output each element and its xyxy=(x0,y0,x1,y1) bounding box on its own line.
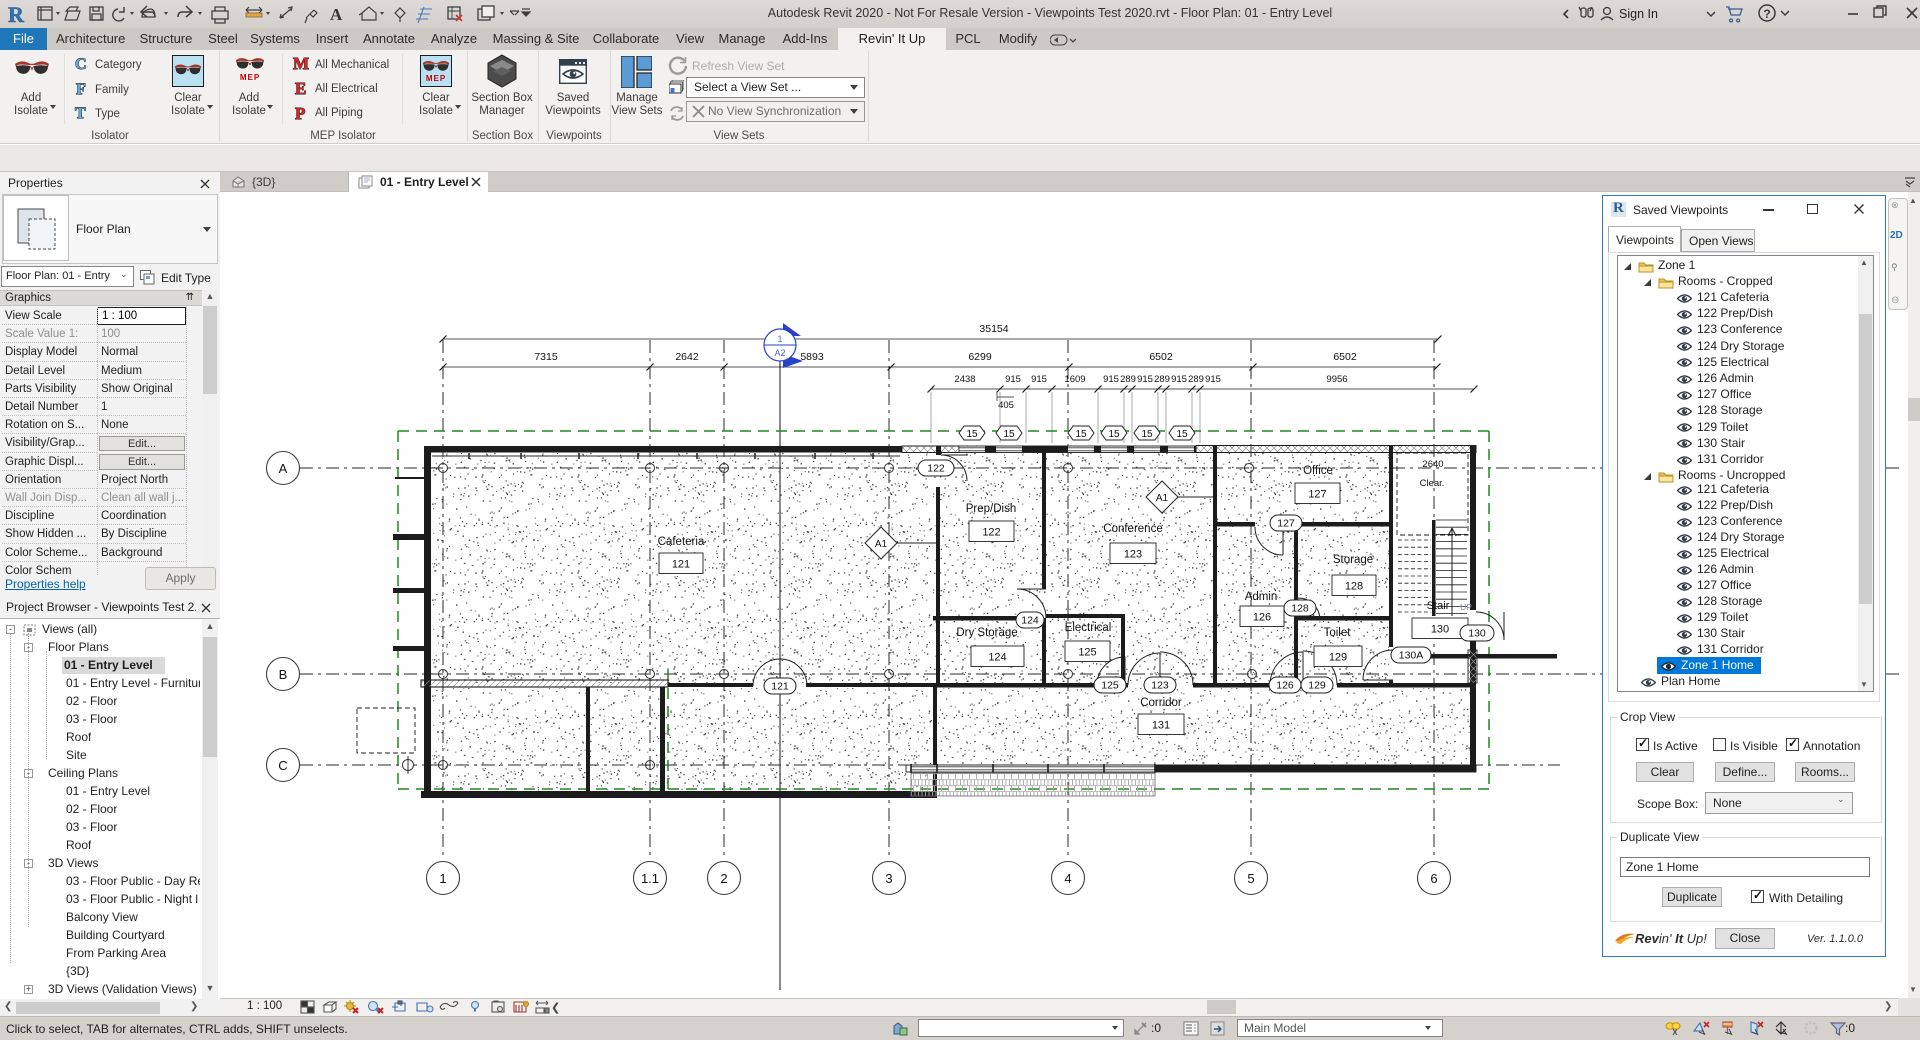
svg-text:Stair: Stair xyxy=(1427,600,1450,612)
svg-text:6502: 6502 xyxy=(1149,351,1173,363)
svg-text:127: 127 xyxy=(1308,489,1326,501)
svg-text:A: A xyxy=(330,5,343,24)
svg-text:A1: A1 xyxy=(1156,493,1169,504)
svg-text:129: 129 xyxy=(1329,652,1347,664)
svg-text:Corridor: Corridor xyxy=(1140,697,1182,709)
svg-text:2640: 2640 xyxy=(1422,459,1443,470)
svg-text:121: 121 xyxy=(672,559,690,571)
svg-text:15: 15 xyxy=(1003,429,1015,440)
svg-text:15: 15 xyxy=(1075,429,1087,440)
svg-text:130: 130 xyxy=(1431,624,1449,636)
svg-text:131: 131 xyxy=(1152,720,1170,732)
svg-text:15: 15 xyxy=(966,429,978,440)
svg-text:C: C xyxy=(278,758,287,773)
svg-text:C: C xyxy=(75,56,87,73)
svg-text:2642: 2642 xyxy=(675,351,699,363)
svg-text:6502: 6502 xyxy=(1333,351,1357,363)
svg-text:9956: 9956 xyxy=(1326,374,1347,385)
svg-text:126: 126 xyxy=(1253,612,1271,624)
svg-text:A2: A2 xyxy=(774,348,785,358)
svg-text:915: 915 xyxy=(1031,374,1047,385)
svg-text:Toilet: Toilet xyxy=(1324,627,1352,639)
svg-text:122: 122 xyxy=(982,527,1000,539)
svg-text:289: 289 xyxy=(1120,374,1136,385)
svg-text:127: 127 xyxy=(1277,518,1295,530)
svg-text:126: 126 xyxy=(1276,680,1294,692)
svg-text:123: 123 xyxy=(1124,549,1142,561)
svg-text:Sign In: Sign In xyxy=(1619,7,1658,21)
svg-text:130A: 130A xyxy=(1399,650,1424,662)
svg-text:2: 2 xyxy=(720,871,727,886)
svg-text:915: 915 xyxy=(1171,374,1187,385)
svg-text:1: 1 xyxy=(439,871,446,886)
svg-text:Admin: Admin xyxy=(1245,591,1278,603)
svg-text:122: 122 xyxy=(927,463,945,475)
svg-text:289: 289 xyxy=(1154,374,1170,385)
svg-text:A1: A1 xyxy=(875,539,888,550)
svg-text:125: 125 xyxy=(1078,647,1096,659)
svg-text:15: 15 xyxy=(1108,429,1120,440)
svg-text:T: T xyxy=(75,105,86,122)
svg-text:6299: 6299 xyxy=(968,351,992,363)
svg-text:E: E xyxy=(295,79,306,98)
svg-text:1609: 1609 xyxy=(1064,374,1085,385)
svg-text:R: R xyxy=(8,2,25,27)
svg-text:129: 129 xyxy=(1308,680,1326,692)
svg-text:1.1: 1.1 xyxy=(641,871,659,886)
svg-text:128: 128 xyxy=(1345,581,1363,593)
svg-text:Cafeteria: Cafeteria xyxy=(658,536,705,548)
svg-text:124: 124 xyxy=(1021,615,1039,627)
svg-text:915: 915 xyxy=(1137,374,1153,385)
svg-text:123: 123 xyxy=(1151,680,1169,692)
svg-text:Electrical: Electrical xyxy=(1065,622,1112,634)
svg-text:5893: 5893 xyxy=(800,351,824,363)
svg-text:1: 1 xyxy=(777,334,782,344)
svg-text:7315: 7315 xyxy=(534,351,558,363)
svg-text:915: 915 xyxy=(1005,374,1021,385)
svg-text:5: 5 xyxy=(1247,871,1254,886)
svg-text:Storage: Storage xyxy=(1333,554,1373,566)
svg-text:6: 6 xyxy=(1430,871,1437,886)
svg-text:Clear.: Clear. xyxy=(1420,478,1445,489)
svg-text:15: 15 xyxy=(1176,429,1188,440)
svg-text:P: P xyxy=(295,104,305,123)
svg-text:Dry Storage: Dry Storage xyxy=(956,627,1017,639)
svg-text:Office: Office xyxy=(1303,465,1333,477)
svg-text:Conference: Conference xyxy=(1103,523,1162,535)
svg-text:121: 121 xyxy=(771,681,789,693)
svg-text:2438: 2438 xyxy=(954,374,975,385)
svg-text:405: 405 xyxy=(998,400,1014,411)
svg-text:M: M xyxy=(293,54,309,73)
svg-text:A: A xyxy=(279,461,288,476)
svg-text:3: 3 xyxy=(885,871,892,886)
svg-text:125: 125 xyxy=(1101,680,1119,692)
svg-text:35154: 35154 xyxy=(979,323,1008,335)
svg-text:?: ? xyxy=(1763,7,1770,21)
svg-text:4: 4 xyxy=(1064,871,1071,886)
svg-text:124: 124 xyxy=(988,652,1006,664)
svg-text:B: B xyxy=(279,667,288,682)
svg-text:15: 15 xyxy=(1141,429,1153,440)
svg-text:Prep/Dish: Prep/Dish xyxy=(966,503,1017,515)
svg-text:128: 128 xyxy=(1291,603,1309,615)
svg-text:F: F xyxy=(76,81,86,98)
svg-text:130: 130 xyxy=(1468,628,1486,640)
svg-text:289: 289 xyxy=(1188,374,1204,385)
svg-text:915: 915 xyxy=(1205,374,1221,385)
svg-text:915: 915 xyxy=(1103,374,1119,385)
